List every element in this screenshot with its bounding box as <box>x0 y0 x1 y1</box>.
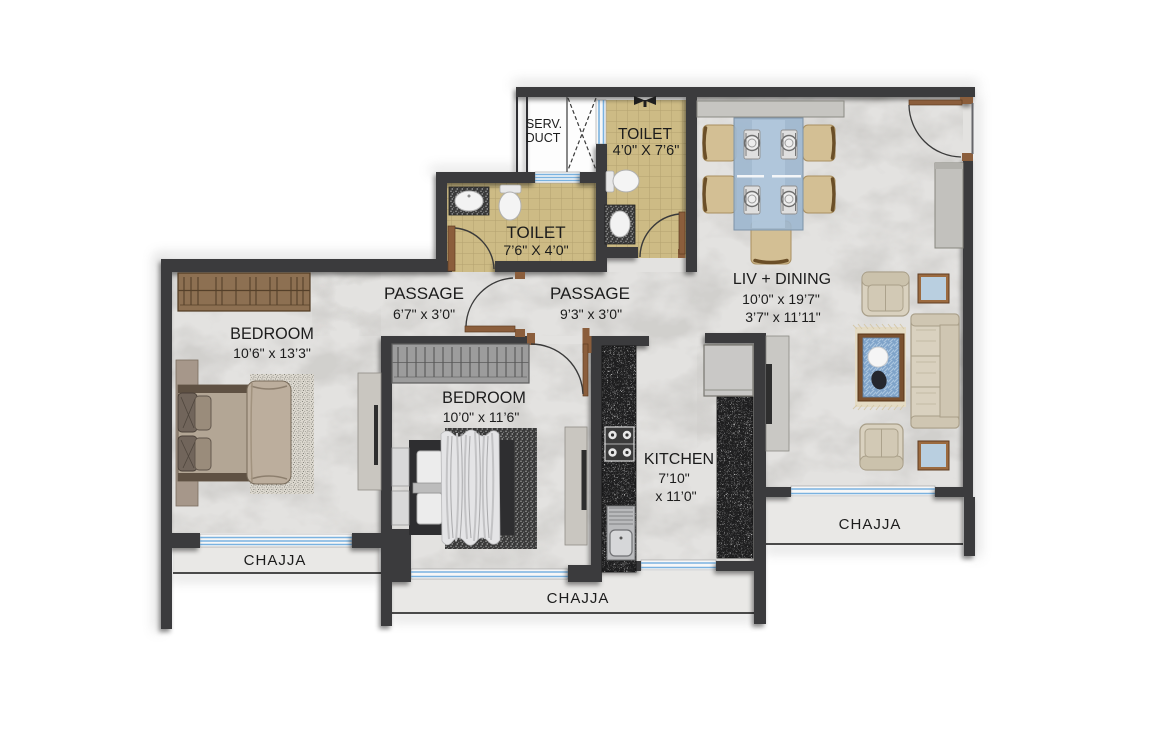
svg-text:TOILET: TOILET <box>618 126 673 143</box>
svg-text:KITCHEN: KITCHEN <box>644 451 714 468</box>
svg-text:BEDROOM: BEDROOM <box>442 389 526 407</box>
svg-text:SERV.: SERV. <box>526 117 562 131</box>
svg-text:CHAJJA: CHAJJA <box>839 516 902 533</box>
svg-text:x 11’0": x 11’0" <box>655 488 696 504</box>
svg-text:10’6" x 13’3": 10’6" x 13’3" <box>233 345 311 361</box>
svg-text:PASSAGE: PASSAGE <box>384 284 464 303</box>
svg-text:6’7" x 3’0": 6’7" x 3’0" <box>393 306 455 322</box>
svg-text:CHAJJA: CHAJJA <box>547 590 610 607</box>
svg-text:TOILET: TOILET <box>506 223 565 242</box>
svg-text:10’0" x 11’6": 10’0" x 11’6" <box>443 409 520 425</box>
svg-text:9’3" x 3’0": 9’3" x 3’0" <box>560 306 622 322</box>
svg-text:BEDROOM: BEDROOM <box>230 325 314 343</box>
svg-text:3’7" x 11’11": 3’7" x 11’11" <box>745 309 821 325</box>
svg-text:PASSAGE: PASSAGE <box>550 284 630 303</box>
svg-text:10’0" x 19’7": 10’0" x 19’7" <box>742 291 820 307</box>
svg-text:LIV + DINING: LIV + DINING <box>733 271 831 288</box>
svg-text:DUCT: DUCT <box>526 131 561 145</box>
svg-text:4’0" X 7’6": 4’0" X 7’6" <box>613 143 680 159</box>
svg-text:7’10": 7’10" <box>658 470 689 486</box>
svg-text:7’6" X 4’0": 7’6" X 4’0" <box>503 243 568 259</box>
svg-text:CHAJJA: CHAJJA <box>244 552 307 569</box>
